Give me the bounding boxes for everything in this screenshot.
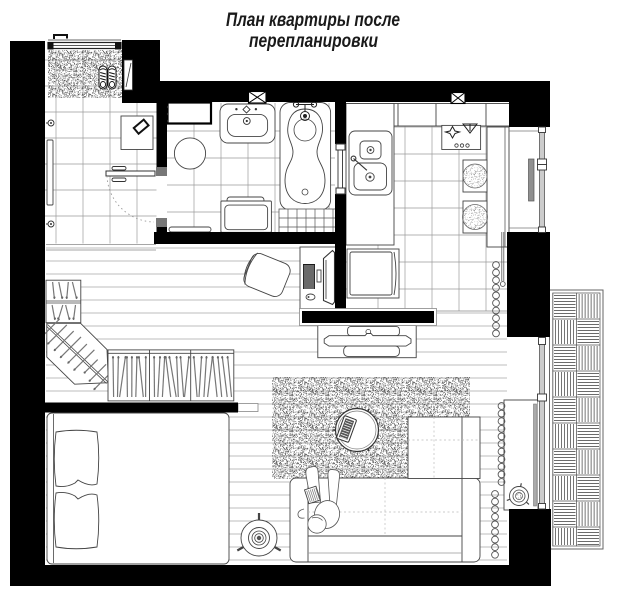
svg-text:План квартиры после: План квартиры после <box>226 10 400 31</box>
svg-text:перепланировки: перепланировки <box>249 31 378 52</box>
